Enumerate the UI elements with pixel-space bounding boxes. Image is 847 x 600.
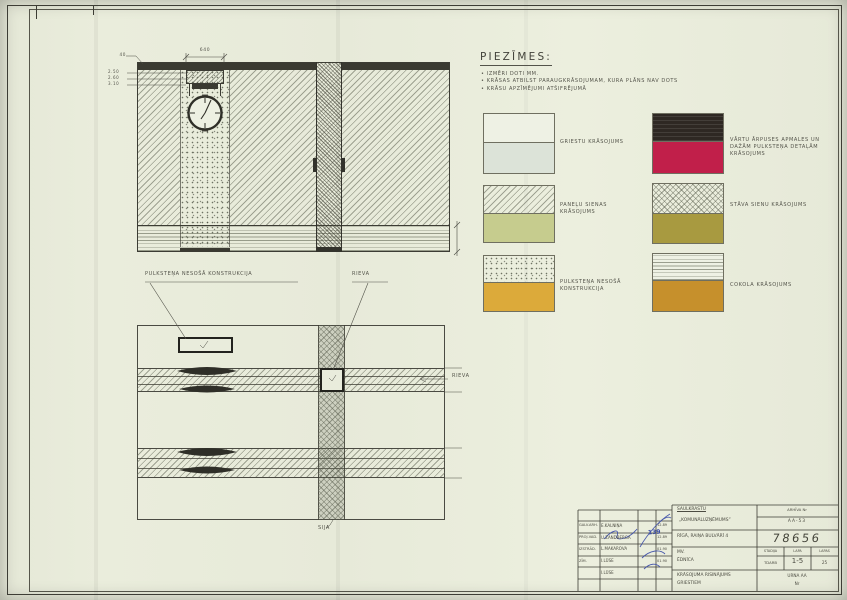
swatch-top-hatch (484, 186, 554, 214)
tb-date: 01.90 (657, 547, 672, 551)
tb-name: L.MAKAROVA (601, 546, 637, 551)
tb-sheet-value: 1-5 (784, 557, 811, 565)
legend-label: PULKSTEŅA NESOŠĀ KONSTRUKCIJA (560, 279, 648, 293)
clock-column-edge (180, 70, 181, 247)
tb-name: I.LŪSE (601, 570, 637, 575)
clock-column (180, 70, 230, 247)
tb-group-line2: Nr (757, 581, 837, 586)
tb-stage-value: TDARB (757, 560, 784, 565)
tb-drawing-no: 78656 (756, 531, 838, 545)
tb-subject-line2: GRIESTIEM (677, 581, 757, 586)
plan-band-lower (137, 448, 445, 478)
groove-cap (316, 247, 342, 252)
level-label: 3.10 (108, 81, 126, 86)
tb-sheets-label: LAPAS (811, 549, 838, 553)
stamp-number: 139 (648, 528, 661, 536)
plan-band-line (137, 458, 445, 459)
tb-org-line1: SAULKRASTU (677, 507, 755, 512)
legend-label: VĀRTU ĀRPUSES APMALES UN DAŽĀM PULKSTEŅA… (730, 137, 830, 157)
legend-label: COKOLA KRĀSOJUMS (730, 282, 830, 289)
legend-swatch-ceiling (483, 113, 555, 174)
tb-sheet-label: LAPA (784, 549, 811, 553)
clock-column-base (180, 248, 230, 252)
note-text: KRĀSU APZĪMĒJUMI ATŠIFRĒJUMĀ (487, 86, 587, 92)
drawing-sheet: 640 40 2.50 2.60 3.10 PULKSTEŅA NESOŠĀ K… (0, 0, 847, 600)
legend-label: PANEĻU SIENAS KRĀSOJUMS (560, 202, 642, 216)
note-text: IZMĒRI DOTI MM. (487, 71, 539, 77)
level-label: 2.60 (108, 75, 126, 80)
tb-name: I.LŪSE (601, 558, 637, 563)
tb-object-line1: MV. (677, 550, 737, 555)
fold-tick (36, 6, 37, 19)
note-item: • KRĀSAS ATBILST PARAUGKRĀSOJUMAM, KURA … (481, 78, 801, 85)
clock-mount-box (186, 70, 224, 84)
groove-anchor (313, 158, 317, 172)
section-left-edge (137, 62, 138, 252)
swatch-color (653, 142, 723, 173)
wall-hatch-right (342, 70, 450, 225)
swatch-top-dark (653, 114, 723, 142)
legend-swatch-storey-walls (652, 183, 724, 244)
plan-band-line (137, 468, 445, 469)
tb-org-line2: „KOMUNĀLUZŅĒMUMS” (679, 518, 757, 523)
legend-swatch-clock-structure (483, 255, 555, 312)
dim-top-label: 640 (194, 48, 216, 54)
tb-date: 12.89 (657, 523, 672, 527)
legend-label: STĀVA SIENU KRĀSOJUMS (730, 202, 812, 209)
tb-role: PROJ.VAD. (579, 535, 599, 539)
fold-tick (93, 6, 94, 15)
section-top-band (137, 63, 316, 70)
groove-anchor (341, 158, 345, 172)
swatch-top-crosshatch (653, 184, 723, 214)
tb-date: 12.89 (657, 535, 672, 539)
tb-stage-label: STADIJA (757, 549, 784, 553)
tb-subject-line1: KRĀSOJUMA RISINĀJUMS (677, 573, 757, 578)
tb-address: RĪGĀ, RAIŅA BULVĀRĪ 4 (677, 534, 757, 539)
swatch-color (653, 281, 723, 311)
swatch-color (484, 143, 554, 173)
note-item: • KRĀSU APZĪMĒJUMI ATŠIFRĒJUMĀ (481, 86, 801, 93)
dim-topleft-label: 40 (110, 52, 126, 58)
swatch-color (484, 283, 554, 311)
swatch-color (484, 214, 554, 242)
tb-sheets-value: 25 (811, 560, 838, 565)
callout-groove: RIEVA (352, 271, 397, 278)
groove-strip (316, 62, 342, 247)
section-right-edge (449, 62, 450, 252)
plan-clock-housing (178, 337, 233, 353)
plan-label-beam: SIJA (318, 525, 352, 532)
plan-groove-box (320, 368, 344, 392)
tb-name: E.KALNIŅA (601, 523, 637, 528)
tb-name: U.ZANDBERGA (601, 535, 637, 540)
section-top-band (342, 63, 450, 70)
legend-swatch-panel-wall (483, 185, 555, 243)
tb-group-line1: URNA AA (757, 573, 837, 578)
note-text: KRĀSAS ATBILST PARAUGKRĀSOJUMAM, KURA PL… (487, 78, 678, 84)
tb-role: GALV.ARH. (579, 523, 599, 527)
clock-column-edge (229, 70, 230, 247)
clock-mount-leg (220, 84, 221, 96)
clock-mount-leg (189, 84, 190, 96)
level-label: 2.50 (108, 69, 126, 74)
clock-mount-bracket (192, 84, 218, 89)
legend-swatch-plinth (652, 253, 724, 312)
swatch-top-stipple (484, 256, 554, 283)
plan-outline (137, 325, 445, 520)
plan-label-groove: RIEVA (452, 373, 492, 380)
tb-date: 01.90 (657, 559, 672, 563)
tb-object-line2: ĒDNĪCA (677, 558, 737, 563)
tb-role: ZĪM. (579, 559, 599, 563)
legend-label: GRIESTU KRĀSOJUMS (560, 139, 652, 146)
wall-hatch-middle (230, 70, 316, 225)
tb-archive-label: ARHĪVA Nr (757, 507, 837, 512)
tb-archive-no: AA-53 (757, 519, 837, 524)
note-item: • IZMĒRI DOTI MM. (481, 71, 801, 78)
plan-beam-strip (318, 325, 345, 520)
plan-band-line (137, 384, 445, 385)
plan-band-upper (137, 368, 445, 392)
wall-hatch-left (137, 70, 180, 225)
swatch-color (653, 214, 723, 243)
plan-band-line (137, 376, 445, 377)
callout-clock-structure: PULKSTEŅA NESOŠĀ KONSTRUKCIJA (145, 271, 315, 278)
swatch-top-blank (484, 114, 554, 143)
tb-role: IZSTRĀD. (579, 547, 599, 551)
legend-swatch-gate-trim (652, 113, 724, 174)
swatch-top-hlines (653, 254, 723, 281)
notes-title: PIEZĪMES: (480, 50, 552, 66)
